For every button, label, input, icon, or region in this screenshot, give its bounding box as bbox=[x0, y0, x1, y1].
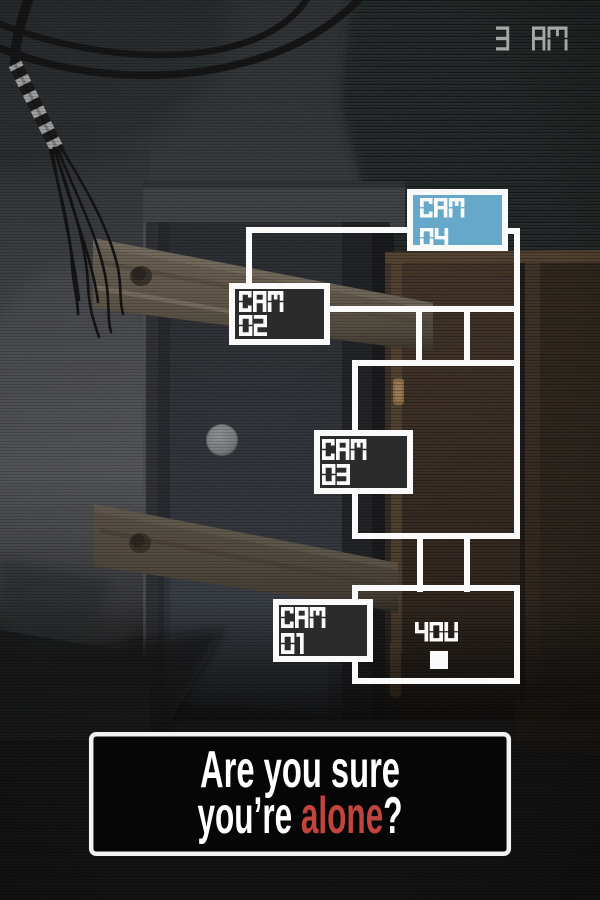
svg-text:you’re alone?: you’re alone? bbox=[198, 787, 403, 845]
